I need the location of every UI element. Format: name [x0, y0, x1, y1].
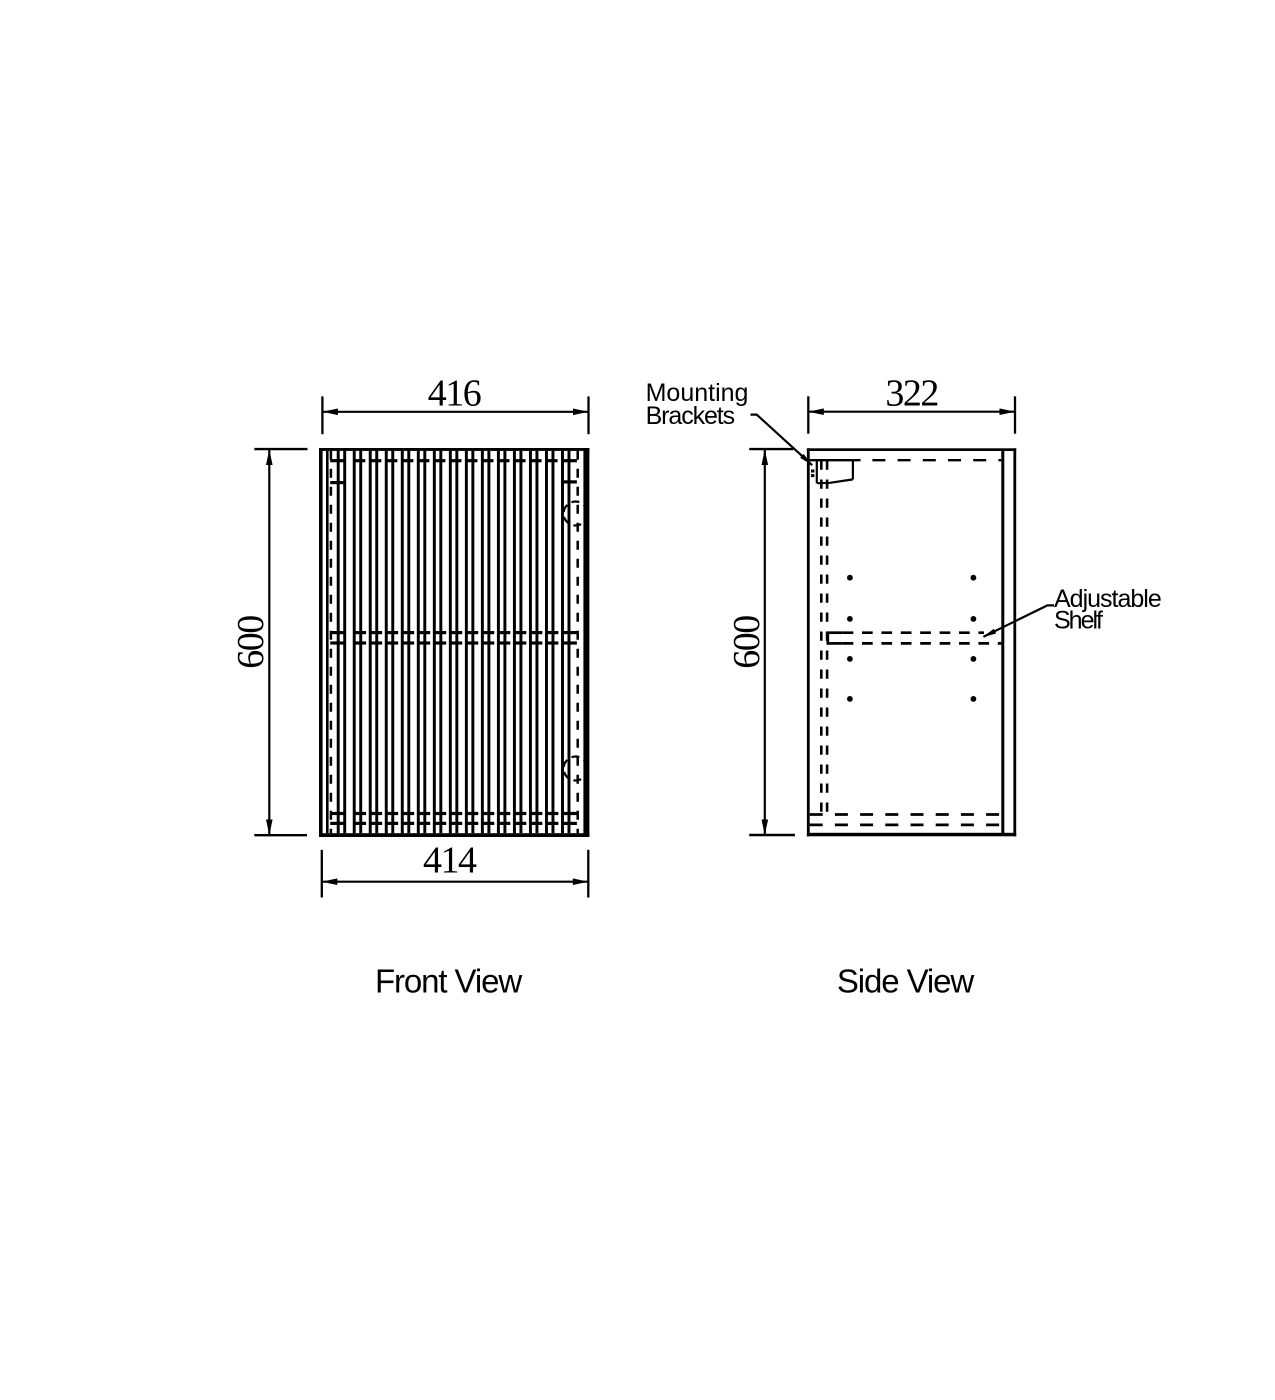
svg-text:Brackets: Brackets	[646, 402, 735, 430]
svg-text:Shelf: Shelf	[1054, 606, 1103, 634]
svg-text:Side View: Side View	[837, 962, 975, 999]
svg-text:600: 600	[726, 616, 768, 669]
svg-text:416: 416	[428, 373, 481, 415]
svg-text:414: 414	[423, 840, 477, 882]
svg-text:322: 322	[885, 373, 938, 415]
svg-text:Front View: Front View	[375, 962, 522, 999]
svg-text:600: 600	[230, 616, 272, 669]
